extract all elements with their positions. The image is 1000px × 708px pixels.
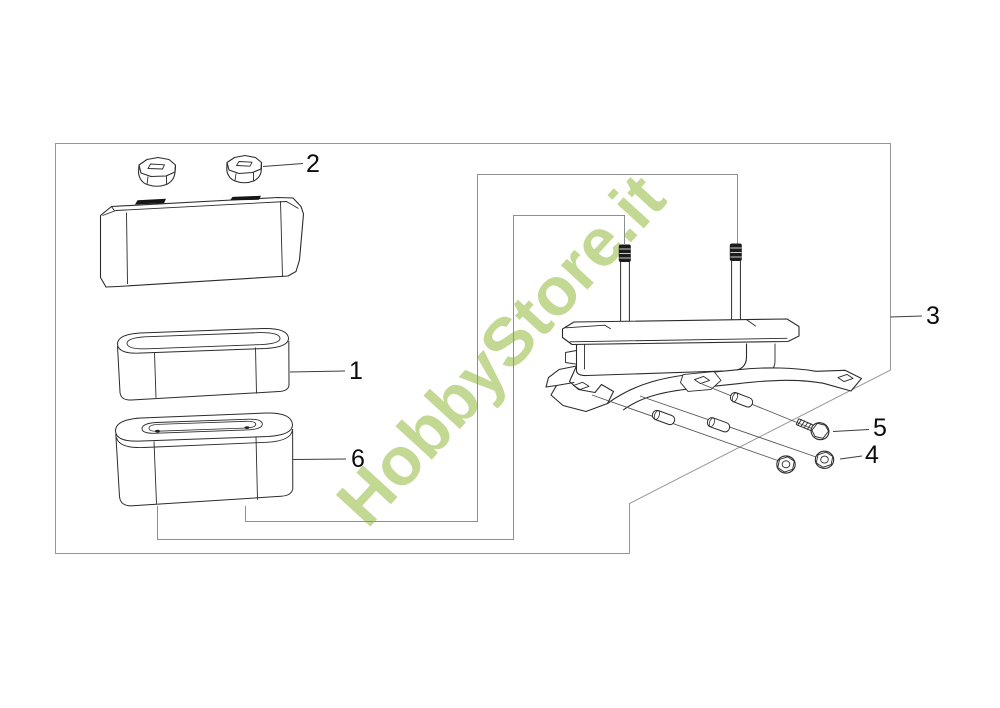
filter6-stud-hole-left (155, 430, 160, 433)
callout-label-5: 5 (873, 416, 887, 441)
cap-nut-left (139, 158, 176, 187)
left-claw-foot (546, 366, 614, 412)
flange-bolt-5 (794, 414, 831, 443)
callout-label-1: 1 (349, 359, 363, 384)
spacer-2 (706, 416, 731, 433)
filter-element-6 (116, 413, 293, 506)
support-arm (608, 368, 862, 410)
callout-line-6 (293, 459, 346, 460)
spacer-1 (651, 409, 676, 426)
cap-nut-right (227, 156, 262, 183)
stud-left (619, 245, 631, 324)
callout-line-4 (840, 456, 862, 459)
callout-label-3: 3 (926, 304, 940, 329)
callout-line-1 (290, 371, 345, 372)
flange-nut-4b (815, 451, 833, 468)
leader-right-stud (246, 175, 738, 522)
filter6-stud-hole-right (244, 426, 249, 429)
parts-diagram-canvas (0, 0, 1000, 708)
callout-label-4: 4 (865, 443, 879, 468)
mounting-flange (563, 319, 800, 345)
parts-diagram-page: HobbyStore.it (0, 0, 1000, 708)
stud-right (730, 244, 742, 323)
callout-line-3 (891, 316, 923, 317)
bolt-threads (797, 419, 811, 431)
filter-base-assembly (546, 244, 862, 412)
callout-label-2: 2 (306, 152, 320, 177)
callout-line-2 (263, 164, 303, 167)
cover-vent-slot-right (230, 196, 261, 201)
flange-nut-4a (777, 456, 795, 473)
callout-line-5 (833, 430, 869, 432)
filter-element-1 (118, 328, 290, 400)
callout-label-6: 6 (351, 447, 365, 472)
air-filter-cover (101, 196, 304, 287)
spacer-3 (729, 391, 754, 408)
arm-middle-ear (681, 372, 722, 392)
callout-leader-lines (263, 164, 922, 460)
